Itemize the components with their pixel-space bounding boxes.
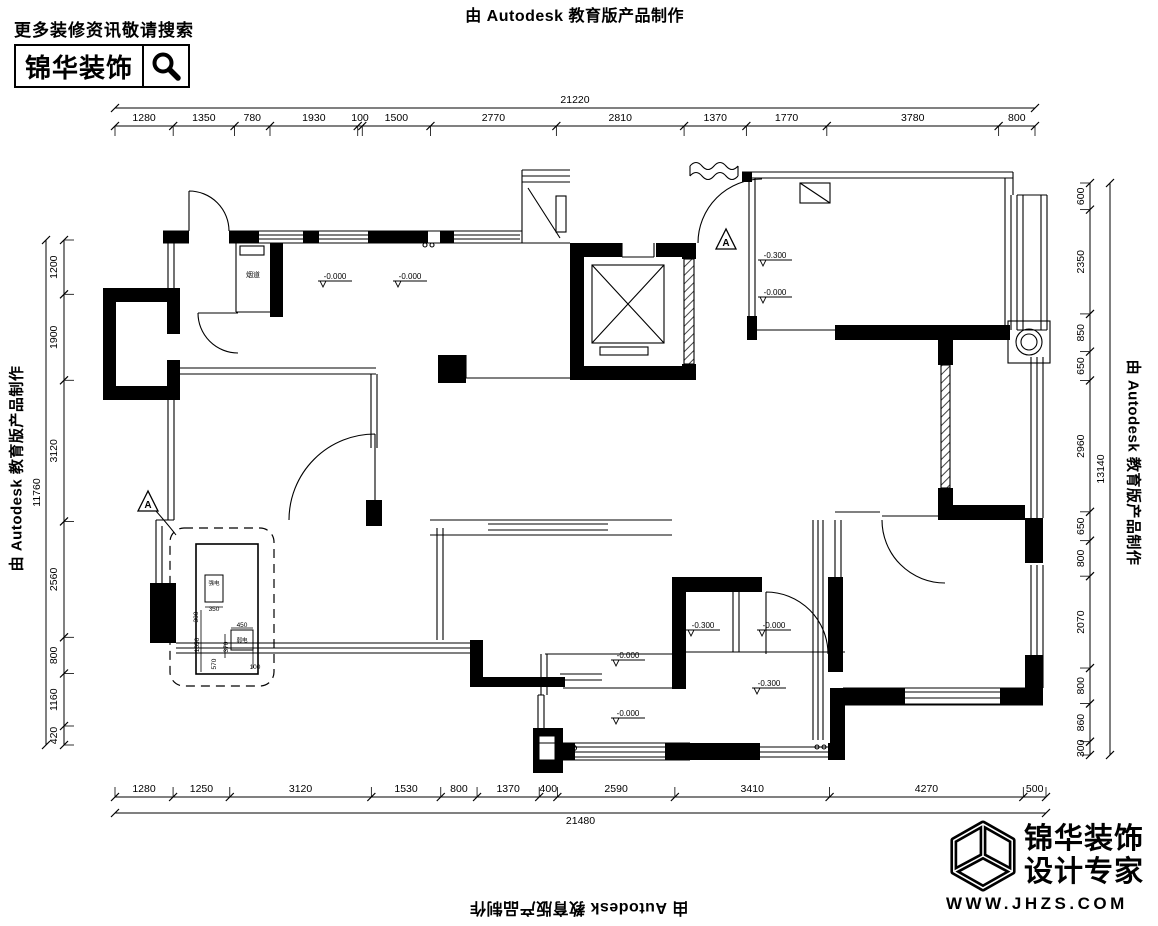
dimension-label: 650 (1075, 357, 1087, 375)
elevation-marker-icon (759, 630, 765, 636)
svg-text:350: 350 (209, 606, 220, 613)
dimension-label: 1530 (394, 783, 418, 795)
dimension-label: 780 (244, 112, 262, 124)
dimension-label: 100 (351, 112, 369, 124)
elevation-marker-icon (760, 260, 766, 266)
dimension-label: 1160 (48, 688, 60, 711)
dimension-label: 2350 (1075, 250, 1087, 274)
svg-text:450: 450 (237, 622, 248, 629)
dimension-label: 2560 (48, 568, 60, 592)
flue-label: 烟道 (246, 270, 260, 279)
dimension-label: 1370 (704, 112, 728, 124)
elevation-marker-icon (688, 630, 694, 636)
dimension-label: 1280 (132, 783, 156, 795)
dimension-label: 600 (1075, 187, 1087, 205)
dimension-label: 3780 (901, 112, 925, 124)
dimension-label: 2770 (482, 112, 506, 124)
elevation-marker-icon (320, 281, 326, 287)
dimension-label: 800 (450, 783, 468, 795)
dimension-label: 1350 (192, 112, 216, 124)
dimension-label: 21220 (560, 94, 589, 106)
floorplan-sheet: 由 Autodesk 教育版产品制作 由 Autodesk 教育版产品制作 由 … (0, 0, 1158, 926)
dimension-label: 3120 (48, 439, 60, 463)
dimension-label: 3120 (289, 783, 313, 795)
dimension-label: 850 (1075, 324, 1087, 342)
svg-text:A: A (722, 238, 729, 249)
dimension-label: 1770 (775, 112, 799, 124)
svg-text:弱电: 弱电 (236, 636, 248, 644)
elevation-marker-value: -0.000 (324, 272, 347, 281)
svg-text:570: 570 (211, 658, 218, 669)
elevation-marker-value: -0.300 (692, 621, 715, 630)
dimension-label: 1200 (48, 255, 60, 279)
elevation-marker-value: -0.000 (399, 272, 422, 281)
dimension-label: 1900 (48, 325, 60, 349)
dimension-label: 800 (1008, 112, 1026, 124)
dimension-label: 800 (1075, 677, 1087, 695)
svg-text:100: 100 (250, 664, 261, 671)
dimension-label: 2590 (604, 783, 628, 795)
dimension-label: 800 (48, 646, 60, 664)
dimension-label: 860 (1075, 714, 1087, 732)
elevation-marker-icon (613, 660, 619, 666)
svg-text:300: 300 (193, 611, 200, 622)
dimension-label: 21480 (566, 815, 595, 827)
dimension-label: 3410 (741, 783, 765, 795)
dimension-label: 13140 (1095, 454, 1107, 483)
elevation-marker-value: -0.300 (764, 251, 787, 260)
elevation-marker-value: -0.000 (763, 621, 786, 630)
wall-segments (103, 172, 1043, 773)
dimension-label: 500 (1026, 783, 1044, 795)
dimension-annotations: 1280135078019301001500277028101370177037… (31, 94, 1114, 827)
elevation-marker-value: -0.000 (764, 288, 787, 297)
svg-text:370: 370 (223, 641, 230, 652)
dimension-label: 1930 (302, 112, 326, 124)
dimension-label: 1250 (190, 783, 214, 795)
elevation-marker-icon (760, 297, 766, 303)
elevation-marker-icon (754, 688, 760, 694)
elevation-marker-icon (395, 281, 401, 287)
dimension-label: 2810 (609, 112, 633, 124)
svg-text:A: A (144, 500, 151, 511)
elevation-marker-icon (613, 718, 619, 724)
svg-text:强电: 强电 (208, 579, 220, 587)
elevation-marker-value: -0.300 (758, 679, 781, 688)
dimension-label: 2960 (1075, 434, 1087, 458)
svg-text:1650: 1650 (194, 637, 201, 652)
dimension-label: 650 (1075, 517, 1087, 535)
floor-plan-drawing: 强电 弱电 350 300 1650 570 370 450 100 A A 烟… (0, 0, 1158, 926)
dimension-label: 1280 (132, 112, 156, 124)
elevation-marker-value: -0.000 (617, 651, 640, 660)
dimension-label: 400 (540, 783, 558, 795)
dimension-label: 11760 (31, 478, 43, 507)
dimension-label: 4270 (915, 783, 939, 795)
dimension-label: 2070 (1075, 610, 1087, 634)
dimension-label: 1370 (496, 783, 520, 795)
dimension-label: 800 (1075, 550, 1087, 568)
elevation-marker-value: -0.000 (617, 709, 640, 718)
dimension-label: 1500 (385, 112, 409, 124)
dimension-label: 300 (1075, 739, 1087, 757)
